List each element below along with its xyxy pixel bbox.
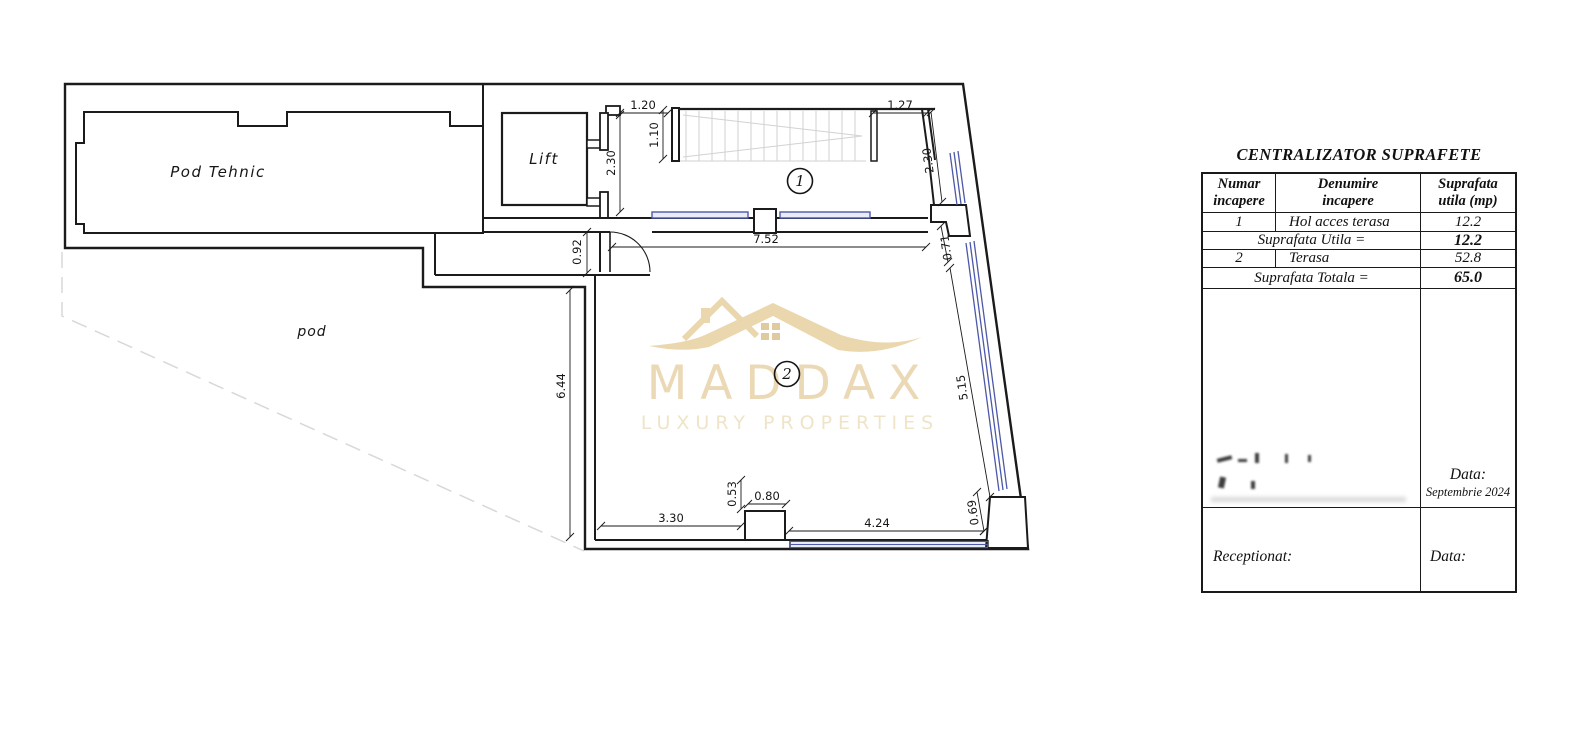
receptionat-date-label: Data: [1420,508,1515,591]
col-header-suprafata: Suprafata utila (mp) [1420,174,1515,212]
roof-slope-dashed-line [62,252,584,551]
lift-door-jambs [587,140,601,206]
dim-1-27: 1.27 [887,98,913,112]
window-column [754,209,776,233]
room-area: 52.8 [1420,250,1515,267]
erased-smudge [1211,497,1406,502]
table-row: 1 Hol acces terasa 12.2 [1203,212,1515,231]
dim-0-92: 0.92 [570,239,584,265]
receptionat-label: Receptionat: [1203,508,1420,591]
total-label: Suprafata Totala = [1203,268,1420,288]
inner-step-walls [435,232,650,540]
floor-plan: MADDAX LUXURY PROPERTIES [0,0,1080,731]
dim-1-20: 1.20 [630,98,656,112]
total-row: Suprafata Totala = 65.0 [1203,267,1515,288]
room-number: 2 [1203,250,1275,267]
logo-tagline-text: LUXURY PROPERTIES [641,412,939,434]
svg-text:2: 2 [781,365,792,383]
logo-window-icon [761,323,780,340]
total-value: 65.0 [1420,268,1515,288]
stair-direction-line [683,115,862,157]
page: MADDAX LUXURY PROPERTIES [0,0,1580,731]
dim-3-30: 3.30 [658,511,684,525]
dim-7-52: 7.52 [753,232,779,246]
pod-tehnic-room [76,112,483,233]
date-value: Septembrie 2024 [1426,485,1510,500]
date-cell: Data: Septembrie 2024 [1420,289,1515,507]
col-header-denumire: Denumire incapere [1275,174,1420,212]
redacted-text [1217,455,1233,463]
redacted-signature-cell [1203,289,1420,507]
room-divider-wall [483,218,928,232]
subtotal-label: Suprafata Utila = [1203,232,1420,249]
dim-0-71: 0.71 [937,234,954,261]
dim-0-53: 0.53 [725,481,739,507]
bottom-right-pillar [986,497,1028,548]
room-name: Hol acces terasa [1275,213,1420,231]
logo-chimney-icon [701,308,710,323]
dim-5-15: 5.15 [953,374,970,401]
window-sill-left [652,212,748,218]
label-pod: pod [296,324,326,340]
right-mid-pillar [931,205,970,236]
glazing-right-wall [966,241,1007,491]
label-lift: Lift [529,150,559,168]
stair-left-wall [672,108,679,161]
signature-date-row: Data: Septembrie 2024 [1203,288,1515,507]
stair-landing-wall [871,111,877,161]
room-name: Terasa [1275,250,1420,267]
dim-0-80: 0.80 [754,489,780,503]
room-area: 12.2 [1420,213,1515,231]
subtotal-row: Suprafata Utila = 12.2 [1203,231,1515,249]
dim-2-30-left: 2.30 [604,150,618,176]
col-header-numar: Numar incapere [1203,174,1275,212]
receptionat-row: Receptionat: Data: [1203,507,1515,591]
chimney [745,511,785,540]
dim-6-44: 6.44 [554,373,568,399]
glazing-bottom [790,542,988,548]
svg-text:1: 1 [795,172,805,190]
table-title: CENTRALIZATOR SUPRAFETE [1201,145,1517,165]
logo-big-roof-icon [649,303,922,352]
table-row: 2 Terasa 52.8 [1203,249,1515,267]
subtotal-value: 12.2 [1420,232,1515,249]
glazing-top-right [950,151,965,205]
room-marker-1: 1 [788,169,813,194]
window-sill-right [780,212,870,218]
date-label: Data: [1450,466,1486,484]
area-summary: CENTRALIZATOR SUPRAFETE Numar incapere D… [1201,145,1517,593]
label-pod-tehnic: Pod Tehnic [170,163,265,181]
dim-4-24: 4.24 [864,516,890,530]
area-summary-table: Numar incapere Denumire incapere Suprafa… [1201,172,1517,593]
door-swing-arc [610,232,650,272]
room-number: 1 [1203,213,1275,231]
dim-1-10: 1.10 [647,122,661,148]
